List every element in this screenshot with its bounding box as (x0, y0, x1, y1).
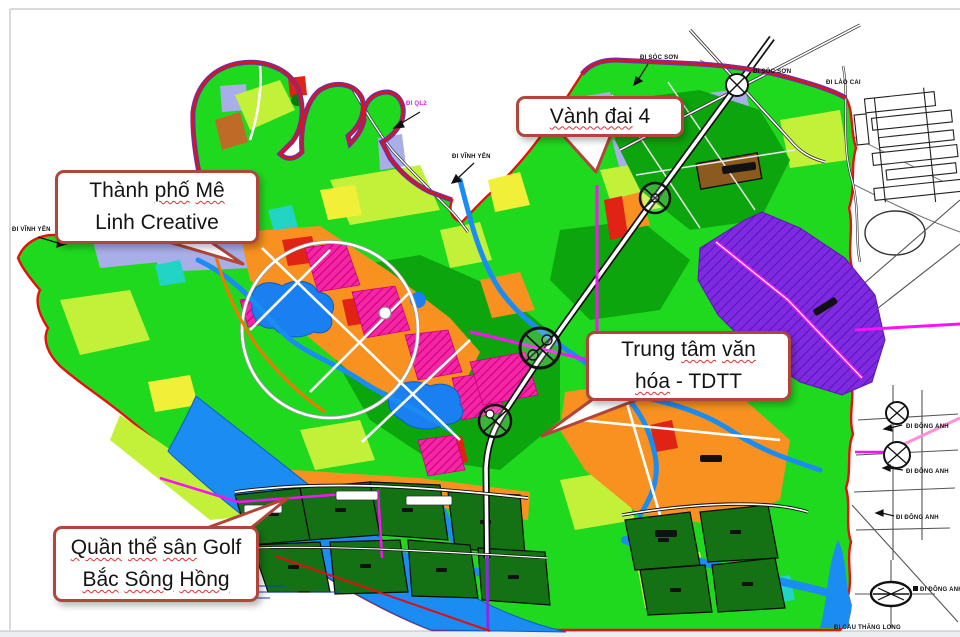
road-label-di-soc-son-1: ĐI SÓC SƠN (640, 53, 678, 61)
road-label-di-lao-cai: ĐI LÀO CAI (826, 79, 861, 86)
callout-culture-sport-center: Trung tâm văn hóa - TDTT (586, 331, 791, 401)
callout-word: Hồng (179, 568, 229, 591)
road-label-di-vinh-yen-2: ĐI VĨNH YÊN (452, 152, 491, 160)
pink-road (900, 418, 960, 446)
callout-word: Vành đai (550, 105, 633, 128)
callout-word: sân (163, 536, 197, 559)
callout-word: văn (722, 338, 756, 361)
callout-text-line: Bắc Sông Hồng (56, 564, 256, 596)
roundabout-icon (726, 74, 748, 96)
road-label-di-ql2: ĐI QL2 (406, 101, 427, 107)
callout-word: Trung (621, 338, 675, 361)
callout-word: thể (128, 536, 157, 559)
planning-map-slide: ĐI SÓC SƠN ĐI SÓC SƠN ĐI LÀO CAI ĐI QL2 … (0, 0, 960, 637)
callout-golf-complex: Quần thể sân Golf Bắc Sông Hồng (53, 526, 259, 602)
road-label-di-dong-anh-3: ĐI ĐÔNG ANH (896, 513, 939, 521)
callout-text-line: hóa - TDTT (589, 366, 788, 398)
callout-word: tâm (681, 338, 716, 361)
callout-text-line: Linh Creative (58, 207, 256, 239)
interchange-icon (640, 183, 670, 213)
callout-word: 4 (639, 105, 651, 128)
callout-word: hóa (635, 370, 670, 393)
road-label-di-dong-anh-2: ĐI ĐÔNG ANH (906, 467, 949, 475)
callout-word: Linh Creative (95, 211, 219, 234)
small-roundabout (379, 307, 391, 319)
interchange-icon (520, 328, 560, 368)
callout-word: Bắc (82, 568, 118, 591)
rail-yard (852, 85, 960, 210)
callout-me-linh-city: Thành phố Mê Linh Creative (55, 170, 259, 244)
callout-word: Golf (203, 536, 242, 559)
callout-text-line: Thành phố Mê (58, 175, 256, 207)
ellipse-interchange-icon (871, 582, 911, 606)
callout-word: - TDTT (676, 370, 742, 393)
callout-ring-road-4: Vành đai 4 (516, 96, 684, 137)
roundabout-icon (884, 442, 910, 468)
callout-text-line: Quần thể sân Golf (56, 532, 256, 564)
road-label-di-cau-thang-long: ĐI CẦU THĂNG LONG (834, 624, 901, 631)
road-label-di-dong-anh-4: ĐI ĐÔNG ANH (920, 585, 960, 593)
road-label-di-soc-son-2: ĐI SÓC SƠN (753, 67, 791, 75)
callout-word: Sông (124, 568, 173, 591)
road-label-di-vinh-yen-1: ĐI VĨNH YÊN (12, 225, 51, 233)
callout-word: Mê (196, 179, 225, 202)
callout-word: Thành (89, 179, 149, 202)
callout-text-line: Vành đai 4 (519, 101, 681, 133)
callout-word: phố (155, 179, 190, 202)
callout-text-line: Trung tâm văn (589, 334, 788, 366)
callout-word: Quần (71, 536, 122, 559)
road-label-di-dong-anh-1: ĐI ĐÔNG ANH (906, 422, 949, 430)
roundabout-icon (886, 402, 908, 424)
interchange-icon (479, 405, 511, 437)
